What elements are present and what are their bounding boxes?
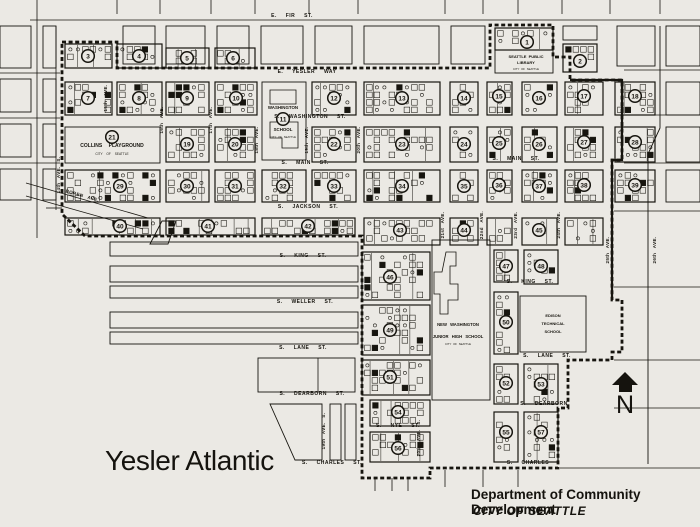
parcel — [460, 152, 466, 158]
parcel-circle — [411, 271, 414, 274]
parcel-circle — [498, 131, 501, 134]
parcel-circle — [390, 108, 393, 111]
avenue-label: 25th AVE. — [605, 236, 610, 263]
block-number: 14 — [458, 92, 471, 105]
parcel — [460, 85, 466, 91]
parcel — [176, 221, 182, 227]
parcel — [525, 145, 531, 151]
building-footprint — [434, 252, 458, 314]
city-block — [43, 79, 56, 112]
parcel — [410, 255, 416, 261]
parcel — [505, 228, 511, 234]
parcel — [128, 173, 134, 179]
block-number-label: 15 — [495, 93, 503, 100]
city-block — [451, 26, 485, 64]
block-number-label: 39 — [631, 182, 639, 189]
street-label: S. LANE ST. — [279, 345, 327, 351]
parcel — [532, 173, 538, 179]
parcel — [143, 228, 149, 234]
parcel-circle — [543, 438, 546, 441]
parcel — [365, 285, 371, 291]
parcel — [127, 54, 133, 60]
avenue-label: 20th AVE. S. — [416, 420, 421, 457]
parcel — [497, 173, 503, 179]
parcel — [575, 107, 581, 113]
parcel — [120, 195, 126, 201]
parcel — [505, 85, 511, 91]
landmark-label: CITY OF SEATTLE — [445, 342, 471, 346]
parcel-circle — [69, 86, 72, 89]
parcel — [453, 107, 459, 113]
landmark-label: CITY OF SEATTLE — [270, 135, 296, 139]
parcel — [127, 107, 133, 113]
parcel — [374, 228, 380, 234]
block-number: 52 — [500, 377, 513, 390]
parcel — [490, 173, 496, 179]
parcel — [374, 100, 380, 106]
block-number: 45 — [533, 224, 546, 237]
block-number: 12 — [328, 92, 341, 105]
block-number: 33 — [328, 180, 341, 193]
block-number: 2 — [574, 55, 587, 68]
parcel — [410, 435, 416, 441]
parcel — [412, 85, 418, 91]
parcel — [128, 228, 134, 234]
parcel-circle — [548, 93, 551, 96]
parcel — [143, 195, 149, 201]
parcel — [575, 130, 581, 136]
block-number-label: 4 — [137, 53, 141, 60]
parcel — [191, 130, 197, 136]
city-block — [617, 26, 655, 66]
street-label: S. NYE ST. — [376, 423, 420, 429]
block-number-label: 28 — [631, 139, 639, 146]
parcel — [568, 92, 574, 98]
parcel — [419, 236, 425, 242]
parcel-circle — [99, 189, 102, 192]
block-number: 20 — [229, 138, 242, 151]
block-outline — [0, 79, 31, 112]
parcel-circle — [368, 146, 371, 149]
block-number: 43 — [394, 224, 407, 237]
parcel — [184, 85, 190, 91]
parcel — [345, 195, 351, 201]
parcel-circle — [528, 261, 531, 264]
parcel — [427, 221, 433, 227]
parcel — [625, 85, 631, 91]
parcel — [525, 195, 531, 201]
parcel-circle — [84, 222, 87, 225]
parcel — [373, 403, 379, 409]
block-outline — [0, 124, 31, 157]
parcel — [453, 195, 459, 201]
city-block — [666, 82, 700, 115]
parcel — [315, 100, 321, 106]
block-outline — [451, 26, 485, 64]
block-number: 25 — [493, 137, 506, 150]
parcel — [513, 38, 519, 44]
landmark-label: SCHOOL — [544, 329, 562, 334]
block-number-label: 18 — [631, 93, 639, 100]
parcel-circle — [192, 86, 195, 89]
parcel — [380, 338, 386, 344]
parcel-circle — [366, 293, 369, 296]
block-number: 4 — [133, 50, 146, 63]
parcel — [625, 107, 631, 113]
block-number: 18 — [629, 90, 642, 103]
landmark-label: LIBRARY — [517, 60, 535, 65]
parcel — [395, 435, 401, 441]
parcel — [372, 378, 378, 384]
parcel-circle — [69, 101, 72, 104]
block-outline — [364, 26, 439, 64]
block-number-label: 34 — [398, 183, 406, 190]
block-number: 21 — [106, 131, 119, 144]
city-block — [110, 286, 358, 298]
parcel-circle — [323, 153, 326, 156]
parcel — [128, 188, 134, 194]
block-number: 31 — [229, 180, 242, 193]
parcel — [427, 100, 433, 106]
street-label: S. DEARBORN — [520, 401, 568, 407]
parcel — [389, 130, 395, 136]
block-outline — [261, 26, 303, 64]
parcel — [347, 221, 353, 227]
block-number-label: 41 — [204, 223, 212, 230]
block-number-label: 53 — [537, 381, 545, 388]
parcel-circle — [528, 269, 531, 272]
parcel — [315, 180, 321, 186]
street-label: S. MAIN ST. — [492, 156, 539, 162]
parcel — [280, 173, 286, 179]
block-number: 30 — [181, 180, 194, 193]
block-number-label: 45 — [535, 227, 543, 234]
parcel — [199, 85, 205, 91]
parcel — [410, 323, 416, 329]
landmark-label: TECHNICAL — [541, 321, 565, 326]
parcel-circle — [151, 196, 154, 199]
parcel-circle — [548, 181, 551, 184]
block-outline — [110, 332, 358, 344]
parcel-circle — [215, 222, 218, 225]
parcel-circle — [323, 108, 326, 111]
block-number: 56 — [392, 442, 405, 455]
building-footprint — [270, 90, 296, 104]
block-outline — [565, 218, 603, 245]
parcel-circle — [388, 316, 391, 319]
parcel — [525, 85, 531, 91]
block-number: 1 — [521, 36, 534, 49]
parcel — [221, 221, 227, 227]
parcel — [345, 137, 351, 143]
block-number: 22 — [328, 138, 341, 151]
block-number-label: 10 — [232, 95, 240, 102]
block-number: 7 — [82, 92, 95, 105]
parcel-circle — [641, 108, 644, 111]
parcel-circle — [177, 189, 180, 192]
street-label: E. FIR ST. — [271, 13, 313, 19]
parcel — [513, 31, 519, 37]
block-number: 17 — [578, 90, 591, 103]
parcel — [380, 308, 386, 314]
parcel — [640, 85, 646, 91]
parcel-circle — [273, 189, 276, 192]
block-number: 46 — [384, 271, 397, 284]
city-block — [666, 170, 700, 202]
city-block — [565, 218, 603, 245]
block-number: 5 — [181, 52, 194, 65]
block-number-label: 16 — [535, 95, 543, 102]
city-block — [258, 358, 355, 392]
parcel — [581, 47, 587, 53]
parcel — [322, 173, 328, 179]
parcel — [575, 152, 581, 158]
parcel-circle — [418, 364, 421, 367]
parcel-circle — [383, 86, 386, 89]
parcel-circle — [366, 364, 369, 367]
parcel — [419, 85, 425, 91]
parcel — [419, 137, 425, 143]
block-number-label: 55 — [502, 429, 510, 436]
parcel — [404, 130, 410, 136]
parcel — [248, 188, 254, 194]
block-number: 54 — [392, 406, 405, 419]
parcel — [395, 292, 401, 298]
city-block — [261, 26, 303, 64]
avenue-label: 19th AVE. — [304, 126, 309, 153]
parcel — [575, 173, 581, 179]
parcel — [184, 228, 190, 234]
parcel — [549, 374, 555, 380]
parcel — [505, 130, 511, 136]
parcel-circle — [548, 146, 551, 149]
block-number: 6 — [227, 52, 240, 65]
parcel-circle — [576, 237, 579, 240]
block-number: 15 — [493, 90, 506, 103]
block-number-label: 1 — [525, 39, 529, 46]
parcel — [248, 145, 254, 151]
parcel — [412, 100, 418, 106]
parcel — [233, 85, 239, 91]
block-number: 37 — [533, 180, 546, 193]
parcel — [498, 31, 504, 37]
parcel — [387, 308, 393, 314]
city-block — [65, 218, 160, 235]
parcel — [340, 221, 346, 227]
parcel — [330, 195, 336, 201]
parcel — [120, 92, 126, 98]
block-number-label: 9 — [185, 95, 189, 102]
parcel — [367, 92, 373, 98]
parcel-circle — [151, 93, 154, 96]
block-number: 13 — [396, 92, 409, 105]
parcel — [419, 173, 425, 179]
parcel — [199, 145, 205, 151]
parcel — [549, 268, 555, 274]
parcel — [248, 137, 254, 143]
parcel-circle — [375, 196, 378, 199]
landmark-label: COLLINS PLAYGROUND — [80, 143, 144, 149]
block-number: 44 — [458, 224, 471, 237]
parcel — [460, 173, 466, 179]
parcel-circle — [346, 174, 349, 177]
parcel — [365, 255, 371, 261]
block-number-label: 5 — [185, 55, 189, 62]
parcel-circle — [541, 196, 544, 199]
attribution-city: CITY OF SEATTLE — [473, 504, 586, 518]
parcel-circle — [121, 101, 124, 104]
parcel — [113, 173, 119, 179]
parcel — [322, 137, 328, 143]
parcel — [199, 92, 205, 98]
parcel — [497, 367, 503, 373]
parcel-circle — [76, 48, 79, 51]
parcel — [583, 195, 589, 201]
parcel — [98, 173, 104, 179]
parcel-circle — [591, 86, 594, 89]
parcel — [142, 85, 148, 91]
parcel — [532, 130, 538, 136]
parcel-circle — [626, 153, 629, 156]
parcel — [225, 107, 231, 113]
block-number-label: 20 — [231, 141, 239, 148]
street-label: E. YESLER WAY — [278, 69, 337, 75]
parcel — [75, 180, 81, 186]
parcel-circle — [341, 229, 344, 232]
parcel — [389, 92, 395, 98]
block-number: 35 — [458, 180, 471, 193]
parcel — [382, 130, 388, 136]
parcel — [68, 107, 74, 113]
block-number-label: 56 — [394, 445, 402, 452]
parcel-circle — [170, 131, 173, 134]
block-number-label: 6 — [231, 55, 235, 62]
street-label: S. KING ST. — [280, 253, 327, 259]
parcel — [143, 173, 149, 179]
parcel — [640, 100, 646, 106]
landmark-label: SEATTLE PUBLIC — [509, 54, 544, 59]
parcel — [547, 188, 553, 194]
parcel — [315, 173, 321, 179]
parcel-circle — [411, 346, 414, 349]
parcel — [169, 221, 175, 227]
block-number-label: 27 — [580, 139, 588, 146]
parcel — [345, 145, 351, 151]
parcel — [372, 385, 378, 391]
block-number: 29 — [114, 180, 127, 193]
parcel-circle — [368, 189, 371, 192]
parcel — [225, 195, 231, 201]
parcel — [218, 85, 224, 91]
parcel — [648, 152, 654, 158]
block-number-label: 13 — [398, 95, 406, 102]
city-block — [666, 26, 700, 66]
parcel — [374, 92, 380, 98]
block-number-label: 24 — [460, 141, 468, 148]
parcel — [272, 195, 278, 201]
block-number-label: 33 — [330, 183, 338, 190]
parcel-circle — [526, 174, 529, 177]
block-outline — [666, 26, 700, 66]
parcel — [410, 385, 416, 391]
parcel — [68, 54, 74, 60]
parcel — [218, 51, 224, 57]
parcel — [287, 221, 293, 227]
parcel — [325, 228, 331, 234]
block-number-label: 12 — [330, 95, 338, 102]
block-outline — [258, 358, 355, 392]
parcel-circle — [373, 324, 376, 327]
parcel — [403, 403, 409, 409]
city-block — [0, 124, 31, 157]
parcel — [618, 188, 624, 194]
city-block — [43, 26, 56, 68]
parcel — [497, 302, 503, 308]
block-number: 32 — [277, 180, 290, 193]
block-number-label: 25 — [495, 140, 503, 147]
parcel — [418, 410, 424, 416]
parcel — [75, 85, 81, 91]
avenue-label: 24th AVE. — [556, 211, 561, 238]
parcel — [98, 180, 104, 186]
city-block — [315, 26, 352, 64]
parcel — [218, 145, 224, 151]
parcel — [90, 188, 96, 194]
block-number: 47 — [500, 260, 513, 273]
parcel — [497, 397, 503, 403]
parcel-circle — [249, 93, 252, 96]
parcel-circle — [548, 174, 551, 177]
parcel — [272, 228, 278, 234]
parcel — [345, 107, 351, 113]
parcel — [199, 130, 205, 136]
parcel-circle — [405, 153, 408, 156]
avenue-label: 22nd AVE. — [479, 211, 484, 239]
block-outline — [617, 26, 655, 66]
landmark-label: JUNIOR HIGH SCHOOL — [433, 334, 484, 339]
parcel-circle — [403, 309, 406, 312]
parcel — [191, 173, 197, 179]
block-outline — [0, 26, 31, 68]
parcel — [374, 152, 380, 158]
parcel-circle — [544, 32, 547, 35]
parcel — [248, 85, 254, 91]
parcel-circle — [526, 108, 529, 111]
city-block — [364, 26, 439, 64]
block-number-label: 30 — [183, 183, 191, 190]
parcel-circle — [498, 348, 501, 351]
block-number-label: 38 — [580, 182, 588, 189]
block-outline — [43, 26, 56, 68]
parcel-circle — [316, 86, 319, 89]
block-number: 3 — [82, 50, 95, 63]
parcel — [427, 145, 433, 151]
parcel — [169, 188, 175, 194]
avenue-label: 23rd AVE. — [513, 211, 518, 238]
block-number: 55 — [500, 426, 513, 439]
block-number-label: 35 — [460, 183, 468, 190]
block-outline — [432, 240, 490, 400]
block-number-label: 21 — [108, 134, 116, 141]
block-number: 36 — [493, 179, 506, 192]
parcel — [402, 270, 408, 276]
block-number-label: 29 — [116, 183, 124, 190]
parcel — [389, 152, 395, 158]
avenue-label: 16th AVE. — [159, 106, 164, 133]
parcel-circle — [491, 196, 494, 199]
parcel-circle — [323, 86, 326, 89]
street-label: S. MAIN ST. — [281, 160, 328, 166]
